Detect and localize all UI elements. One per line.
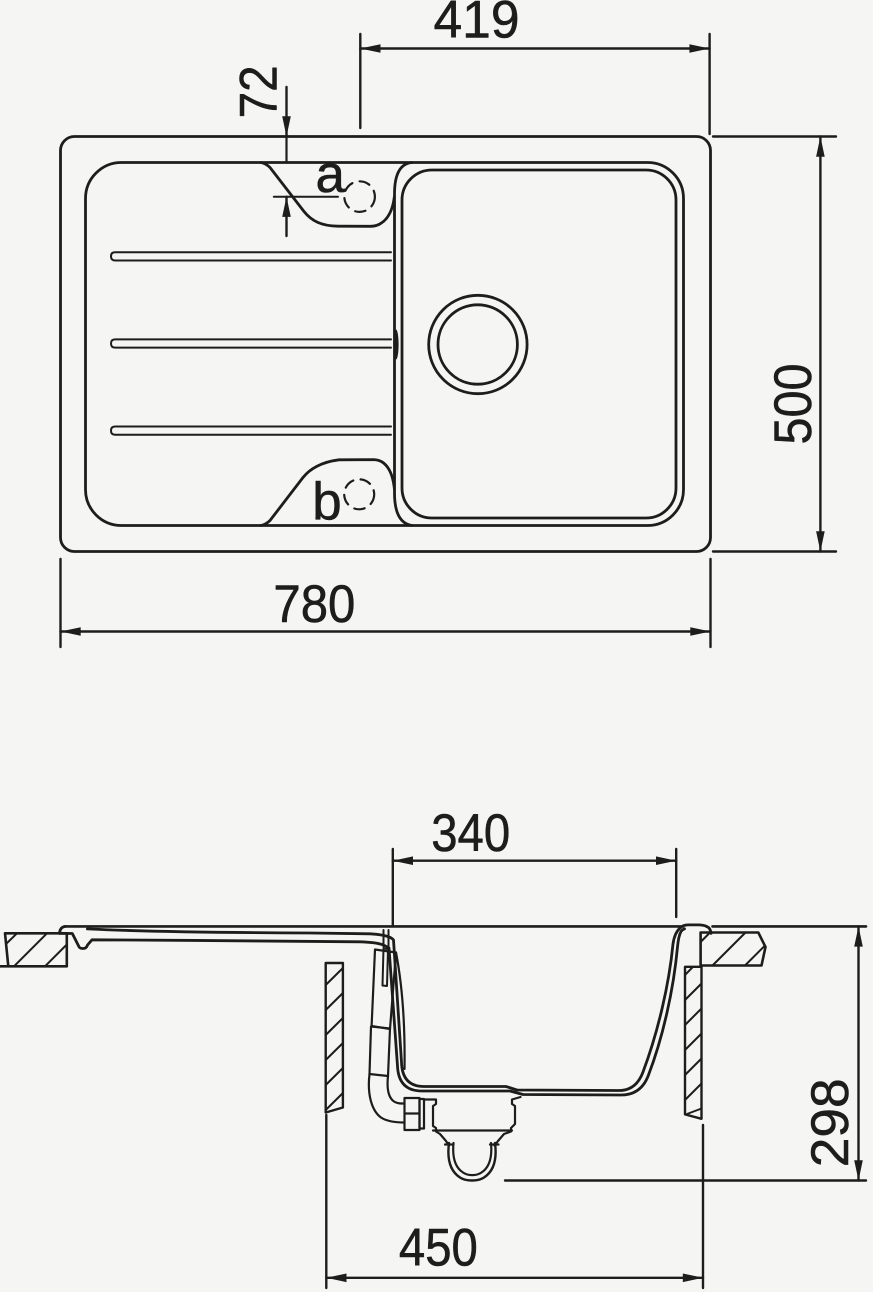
svg-text:500: 500 [764, 364, 823, 445]
svg-text:72: 72 [230, 65, 289, 118]
svg-text:340: 340 [431, 804, 510, 863]
svg-text:419: 419 [434, 0, 520, 50]
svg-text:298: 298 [801, 1078, 860, 1167]
svg-text:450: 450 [399, 1219, 478, 1278]
svg-text:780: 780 [273, 575, 355, 634]
svg-text:a: a [315, 145, 345, 204]
svg-text:b: b [312, 473, 341, 532]
